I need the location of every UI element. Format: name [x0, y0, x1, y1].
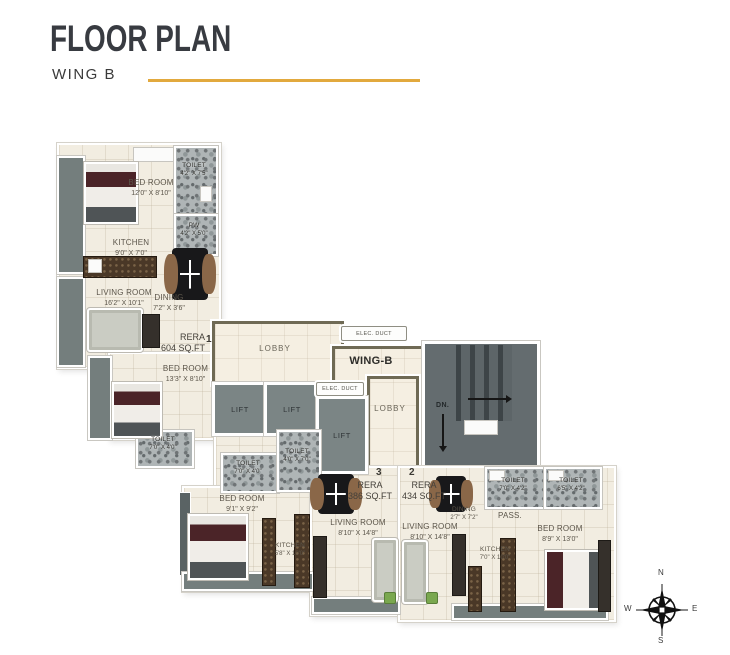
rera-area: 604 SQ.FT	[161, 343, 205, 353]
sofa-furniture	[402, 540, 428, 604]
rera-area: 386 SQ.FT	[348, 491, 392, 501]
room-dims: 8'9" X 13'0"	[528, 535, 592, 544]
lift-label: LIFT	[333, 431, 351, 440]
room-dims: 7'2" X 3'6"	[145, 304, 193, 313]
unit2-passage-label: PASS.	[490, 511, 530, 521]
unit3-toilet-a-label: TOILET 7'0" X 4'0"	[219, 460, 277, 477]
elec-duct-mid: ELEC. DUCT	[316, 382, 364, 396]
unit3-rera-label: RERA 386 SQ.FT	[342, 480, 398, 503]
wing-b-label: WING-B	[333, 355, 409, 367]
unit3-kitchen-label: KITCHEN 5'8" X 10'0"	[266, 542, 314, 559]
room-dims: 4'2" X 5'0"	[172, 231, 216, 239]
room-name: BED ROOM	[138, 364, 233, 374]
unit1-bedroom2-label: BED ROOM 13'3" X 8'10"	[138, 364, 233, 384]
room-dims: 7'0" X 4'0"	[219, 469, 277, 477]
unit3-toilet-b-label: TOILET 4'0" X 7'0"	[275, 448, 319, 465]
room-dims: 9'1" X 9'2"	[198, 505, 286, 514]
room-name: LIVING ROOM	[326, 518, 390, 528]
unit1-rera-label: RERA 604 SQ.FT	[155, 332, 205, 355]
room-name: PASS.	[490, 511, 530, 521]
tv-unit-furniture	[452, 534, 466, 596]
unit2-rera-label: RERA 434 SQ.FT	[396, 480, 452, 503]
compass-east-label: E	[692, 604, 697, 613]
up-arrowhead-icon	[506, 395, 512, 403]
room-name: KITCHEN	[95, 238, 167, 248]
room-dims: 7'0" X 10'0"	[468, 555, 522, 563]
kitchen-counter	[468, 566, 482, 612]
compass-north-label: N	[658, 568, 664, 577]
unit2-bedroom-label: BED ROOM 8'9" X 13'0"	[528, 524, 592, 544]
unit3-living-label: LIVING ROOM 8'10" X 14'8"	[326, 518, 390, 538]
unit1-balcony-left-upper	[57, 156, 85, 274]
unit3-bedroom-label: BED ROOM 9'1" X 9'2"	[198, 494, 286, 514]
unit1-number: 1	[206, 334, 212, 345]
stair-treads	[456, 345, 512, 421]
unit2-toilet-b-label: TOILET 6'5" X 4'2"	[542, 477, 600, 494]
unit2-living-label: LIVING ROOM 8'10" X 14'8"	[398, 522, 462, 542]
unit2-kitchen-label: KITCHEN 7'0" X 10'0"	[468, 546, 522, 563]
rera-word: RERA	[180, 332, 205, 342]
room-dims: 7'0" X 4'0"	[134, 445, 192, 453]
lift-label: LIFT	[283, 405, 301, 414]
unit1-dining-label: DINING 7'2" X 3'6"	[145, 293, 193, 313]
accent-divider	[148, 79, 420, 82]
room-name: DINING	[440, 506, 488, 514]
bed-furniture	[188, 514, 248, 580]
room-name: KITCHEN	[468, 546, 522, 554]
unit1-toilet-label: TOILET 4'2" X 7'5"	[172, 162, 216, 179]
sofa-furniture	[87, 308, 143, 352]
room-name: TOILET	[275, 448, 319, 456]
unit1-balcony-left-lower	[57, 277, 85, 367]
unit3-number: 3	[376, 467, 382, 478]
unit2-number: 2	[409, 467, 415, 478]
room-dims: 8'10" X 14'8"	[398, 533, 462, 542]
plant-icon	[384, 592, 396, 604]
rera-word: RERA	[411, 480, 436, 490]
room-dims: 4'0" X 7'0"	[275, 457, 319, 465]
unit2-toilet-a-label: TOILET 7'0" X 4'2"	[483, 477, 543, 494]
room-name: BED ROOM	[528, 524, 592, 534]
room-name: KITCHEN	[266, 542, 314, 550]
room-dims: 13'3" X 8'10"	[138, 375, 233, 384]
unit1-pw-label: PW 4'2" X 5'0"	[172, 222, 216, 239]
wc-fixture	[200, 186, 212, 202]
stair-landing	[464, 420, 498, 435]
wing-subtitle: WING B	[52, 66, 116, 83]
rera-word: RERA	[357, 480, 382, 490]
down-arrowhead-icon	[439, 446, 447, 452]
unit1-bedroom-label: BED ROOM 12'0" X 8'10"	[105, 178, 197, 198]
lift-1: LIFT	[212, 382, 268, 436]
down-arrow-icon	[442, 414, 444, 446]
sink-fixture	[88, 259, 102, 273]
room-name: TOILET	[483, 477, 543, 485]
room-name: TOILET	[219, 460, 277, 468]
room-name: TOILET	[134, 436, 192, 444]
bed-furniture	[112, 382, 162, 438]
room-name: DINING	[145, 293, 193, 303]
room-dims: 12'0" X 8'10"	[105, 189, 197, 198]
unit2-dining-label: DINING 2'7" X 7'2"	[440, 506, 488, 523]
unit1-bedroom2-balcony	[88, 356, 112, 440]
compass: N S W E	[622, 568, 702, 646]
unit1-toilet2-label: TOILET 7'0" X 4'0"	[134, 436, 192, 453]
elec-duct-top: ELEC. DUCT	[341, 326, 407, 341]
up-arrow-icon	[468, 398, 506, 400]
room-name: TOILET	[542, 477, 600, 485]
room-name: BED ROOM	[198, 494, 286, 504]
room-dims: 6'5" X 4'2"	[542, 486, 600, 494]
room-dims: 4'2" X 7'5"	[172, 171, 216, 179]
tv-unit-furniture	[313, 536, 327, 598]
room-name: BED ROOM	[105, 178, 197, 188]
lift-label: LIFT	[231, 405, 249, 414]
compass-west-label: W	[624, 604, 632, 613]
lift-2: LIFT	[264, 382, 320, 436]
bed-furniture	[545, 550, 603, 610]
room-name: PW	[172, 222, 216, 230]
lobby-side-label: LOBBY	[370, 404, 410, 413]
stairs-down-label: DN.	[436, 402, 449, 409]
room-dims: 7'0" X 4'2"	[483, 486, 543, 494]
room-dims: 8'10" X 14'8"	[326, 529, 390, 538]
lift-3: LIFT	[316, 396, 368, 474]
page-title: FLOOR PLAN	[50, 18, 231, 61]
room-dims: 9'0" X 7'0"	[95, 249, 167, 258]
room-name: TOILET	[172, 162, 216, 170]
compass-rose-icon	[622, 568, 702, 646]
compass-south-label: S	[658, 636, 663, 645]
room-name: LIVING ROOM	[398, 522, 462, 532]
wardrobe-furniture	[598, 540, 611, 612]
lobby-side	[367, 376, 419, 478]
plant-icon	[426, 592, 438, 604]
lobby-main-label: LOBBY	[245, 344, 305, 353]
room-dims: 5'8" X 10'0"	[266, 551, 314, 559]
unit1-kitchen-label: KITCHEN 9'0" X 7'0"	[95, 238, 167, 258]
rera-area: 434 SQ.FT	[402, 491, 446, 501]
